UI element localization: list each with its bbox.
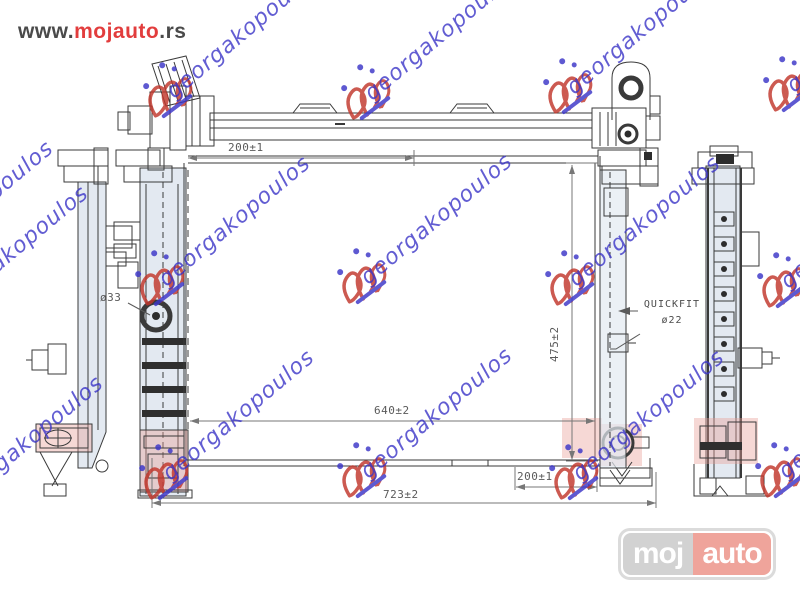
mojauto-logo-moj: moj [623, 533, 693, 575]
front-view [184, 156, 650, 490]
dim-top-width: 200±1 [228, 141, 264, 154]
side-view-left-inner [114, 148, 192, 498]
side-view-left-outer [26, 148, 132, 496]
mojauto-logo-auto: auto [693, 533, 771, 575]
dim-core-width: 640±2 [374, 404, 410, 417]
dim-height: 475±2 [548, 326, 561, 362]
dim-bottom-offset: 200±1 [517, 470, 553, 483]
dim-overall-width: 723±2 [383, 488, 419, 501]
label-quickfit: QUICKFIT ø22 [630, 297, 714, 328]
dim-inlet-diameter: ø33 [100, 291, 121, 304]
mojauto-logo: moj auto [618, 528, 776, 580]
label-quickfit-text: QUICKFIT [630, 297, 714, 313]
product-image-page: { "header": { "prefix": "www.", "brand":… [0, 0, 800, 600]
label-quickfit-diameter: ø22 [630, 313, 714, 329]
top-view [118, 56, 660, 150]
